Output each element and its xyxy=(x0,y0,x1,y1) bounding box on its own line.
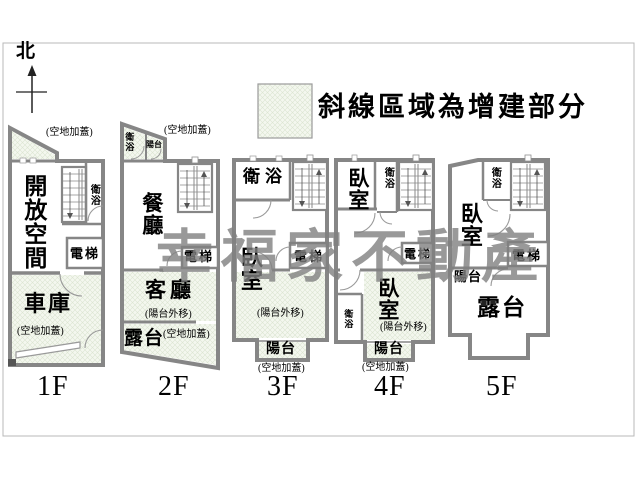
realty-watermark: 幸福家不動產 xyxy=(156,211,546,293)
stairs-4f xyxy=(399,155,433,210)
legend-note: 斜線區域為增建部分 xyxy=(318,93,588,121)
room-4f-bath-small: 衛浴 xyxy=(343,309,352,329)
room-2f-terrace: 露台 xyxy=(124,329,164,349)
note-2f-top: (空地加蓋) xyxy=(164,126,211,136)
note-1f-garage: (空地加蓋) xyxy=(17,327,64,337)
room-1f-bath: 衛浴 xyxy=(88,184,98,206)
room-3f-balcony: 陽台 xyxy=(266,343,296,358)
floor-label-5f: 5F xyxy=(486,372,518,401)
north-label: 北 xyxy=(16,42,35,62)
note-2f-living: (陽台外移) xyxy=(145,310,192,320)
note-4f-shift: (陽台外移) xyxy=(380,323,427,333)
legend-hatch-swatch xyxy=(258,84,312,138)
room-2f-bath: 衛浴 xyxy=(124,132,133,152)
floor-label-3f: 3F xyxy=(267,372,299,401)
note-3f-shift: (陽台外移) xyxy=(257,309,304,319)
floor-label-2f: 2F xyxy=(158,372,190,401)
room-1f-elevator: 電梯 xyxy=(70,247,100,261)
room-4f-bath-top: 衛浴 xyxy=(382,167,392,189)
floor-label-1f: 1F xyxy=(37,372,69,401)
room-1f-garage: 車庫 xyxy=(24,293,72,316)
room-4f-bedroom-top: 臥室 xyxy=(346,167,368,211)
room-5f-terrace: 露台 xyxy=(477,296,527,320)
room-2f-balcony: 陽台 xyxy=(146,141,162,149)
room-5f-bath: 衛浴 xyxy=(489,167,499,189)
room-3f-bath: 衛浴 xyxy=(243,168,287,186)
north-arrow-icon xyxy=(16,65,47,113)
note-2f-terrace: (空地加蓋) xyxy=(163,330,210,340)
room-1f-open-space: 開放空間 xyxy=(21,174,45,270)
corner-mark xyxy=(8,359,16,366)
stairs-5f xyxy=(511,155,545,210)
note-1f-top: (空地加蓋) xyxy=(46,128,93,138)
floor-label-4f: 4F xyxy=(374,372,406,401)
stairs-3f xyxy=(293,155,327,210)
floorplan-canvas: 北 斜線區域為增建部分 (空地加蓋) 開放空間 衛浴 電梯 車庫 (空地加蓋) … xyxy=(0,0,640,480)
stairs-2f xyxy=(178,157,212,212)
room-4f-balcony: 陽台 xyxy=(374,343,404,358)
